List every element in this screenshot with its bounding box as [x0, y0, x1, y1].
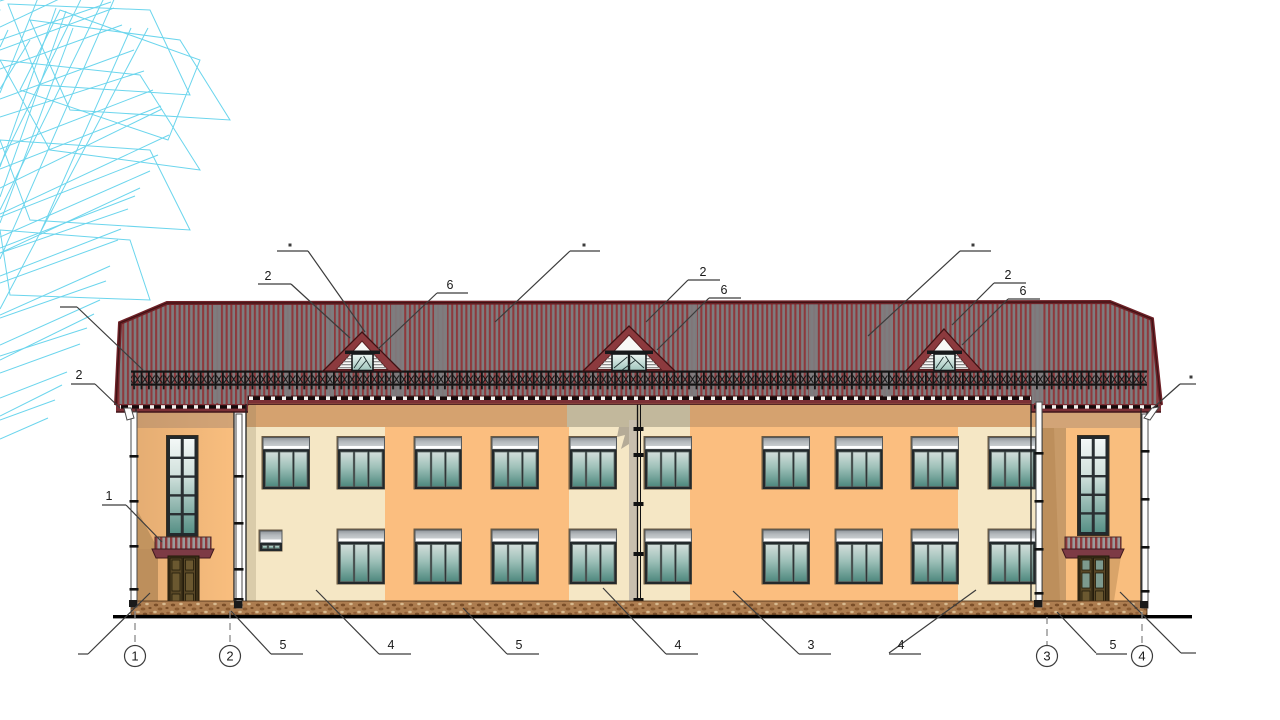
svg-text:4: 4: [675, 638, 682, 652]
svg-text:4: 4: [1138, 649, 1145, 664]
svg-text:5: 5: [1110, 638, 1117, 652]
svg-text:3: 3: [1043, 649, 1050, 664]
svg-text:2: 2: [700, 265, 707, 279]
svg-text:2: 2: [1005, 268, 1012, 282]
svg-text:3: 3: [808, 638, 815, 652]
svg-text:5: 5: [280, 638, 287, 652]
svg-text:2: 2: [226, 649, 233, 664]
svg-text:1: 1: [106, 489, 113, 503]
svg-text:4: 4: [388, 638, 395, 652]
svg-text:2: 2: [265, 269, 272, 283]
svg-text:2: 2: [76, 368, 83, 382]
svg-text:4: 4: [898, 638, 905, 652]
svg-text:5: 5: [516, 638, 523, 652]
svg-text:6: 6: [1020, 284, 1027, 298]
svg-text:6: 6: [721, 283, 728, 297]
svg-text:6: 6: [447, 278, 454, 292]
svg-text:1: 1: [131, 649, 138, 664]
